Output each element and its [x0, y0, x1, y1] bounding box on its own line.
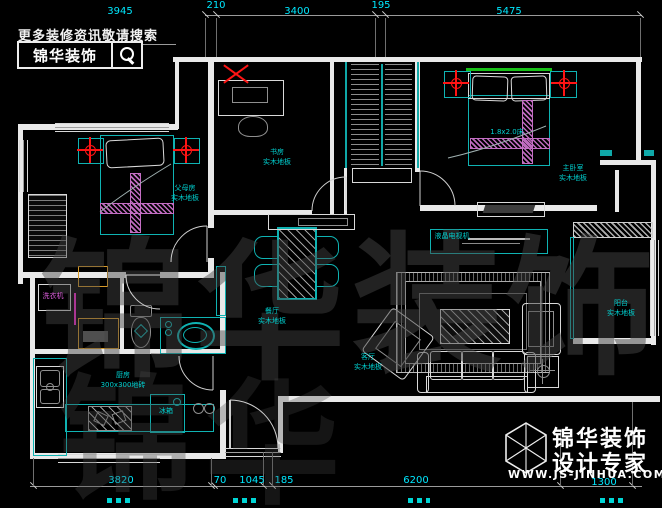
fridge-label: 冰箱	[159, 406, 173, 416]
room-label-line: 厨房	[101, 370, 146, 380]
room-label-balcony: 阳台实木地板	[607, 298, 635, 318]
room-label-living-room: 客厅实木地板	[354, 352, 382, 372]
washing-machine-label: 洗衣机	[43, 291, 64, 301]
entry-door-arc	[230, 400, 278, 448]
room-label-line: 300x300地砖	[101, 380, 146, 390]
room-label-line: 实木地板	[607, 308, 635, 318]
room-label-line: 阳台	[607, 298, 635, 308]
door-arc	[126, 275, 160, 309]
floor-plan-canvas: 锦 华 装 饰 锦 华	[0, 0, 662, 508]
brand-search-box: 锦华装饰	[17, 41, 143, 69]
ceiling-light-icon	[443, 70, 469, 96]
room-label-dining-room: 餐厅实木地板	[258, 306, 286, 326]
footer-url: WWW.JS-JINHUA.COM	[508, 468, 662, 481]
blanket-curve	[100, 164, 171, 212]
room-label-line: 客厅	[354, 352, 382, 362]
red-cross-mark-icon	[222, 62, 250, 86]
door-arc	[312, 177, 346, 211]
door-arc	[420, 171, 455, 206]
room-label-parents-bedroom: 父母房实木地板	[171, 183, 199, 203]
room-label-line: 餐厅	[258, 306, 286, 316]
room-label-line: 主卧室	[559, 163, 587, 173]
room-label-line: 实木地板	[263, 157, 291, 167]
room-label-line: 实木地板	[354, 362, 382, 372]
room-label-line: 实木地板	[258, 316, 286, 326]
door-arc	[171, 226, 207, 262]
room-label-kitchen: 厨房300x300地砖	[101, 370, 146, 390]
magnifier-icon	[113, 43, 141, 67]
room-label-master-bedroom: 主卧室实木地板	[559, 163, 587, 183]
room-label-line: 父母房	[171, 183, 199, 193]
room-label-line: 实木地板	[559, 173, 587, 183]
ceiling-light-icon	[173, 137, 199, 163]
bed-size-label: 1.8x2.0床	[490, 127, 523, 137]
magnifier-handle	[127, 57, 135, 65]
brand-name: 锦华装饰	[19, 43, 111, 67]
room-label-line: 实木地板	[171, 193, 199, 203]
room-label-study: 书房实木地板	[263, 147, 291, 167]
door-arc	[179, 356, 213, 390]
ceiling-light-icon	[551, 70, 577, 96]
tv-label: 液晶电视机	[435, 231, 470, 241]
room-label-line: 书房	[263, 147, 291, 157]
ceiling-light-icon	[77, 137, 103, 163]
